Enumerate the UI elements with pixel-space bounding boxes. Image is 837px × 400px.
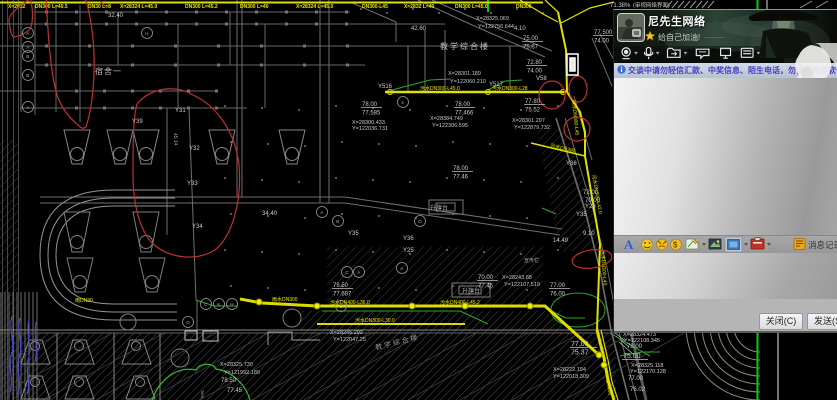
svg-text:DN300 L=40.5: DN300 L=40.5 <box>35 4 68 10</box>
svg-text:76.00: 76.00 <box>550 292 566 298</box>
svg-text:34.40: 34.40 <box>262 211 278 217</box>
svg-text:H: H <box>145 31 148 36</box>
svg-text:72.80: 72.80 <box>527 60 543 66</box>
svg-text:X=28222.194: X=28222.194 <box>553 367 586 373</box>
svg-text:77.46: 77.46 <box>453 175 469 181</box>
svg-text:G: G <box>418 219 422 224</box>
svg-text:B: B <box>26 73 29 78</box>
svg-text:77.45: 77.45 <box>227 388 243 394</box>
svg-text:升旗台: 升旗台 <box>430 204 448 212</box>
svg-text:Y34: Y34 <box>192 224 203 230</box>
svg-text:(审视网络界面): (审视网络界面) <box>633 1 670 9</box>
svg-text:77.00: 77.00 <box>628 376 644 382</box>
svg-text:Y32: Y32 <box>189 146 200 152</box>
svg-text:H: H <box>230 302 233 307</box>
svg-text:Y28: Y28 <box>585 204 596 210</box>
svg-text:75.00: 75.00 <box>523 36 539 42</box>
svg-text:78.00: 78.00 <box>453 166 469 172</box>
svg-text:雨水DN300: 雨水DN300 <box>272 296 298 303</box>
svg-text:Y25: Y25 <box>403 248 414 254</box>
svg-text:G: G <box>339 304 343 309</box>
svg-text:75.00: 75.00 <box>623 353 641 360</box>
svg-text:76.0: 76.0 <box>200 390 205 399</box>
svg-text:X=28245.292: X=28245.292 <box>330 330 363 336</box>
svg-text:74.00: 74.00 <box>527 69 543 75</box>
svg-text:75.87: 75.87 <box>523 45 539 51</box>
svg-text:K: K <box>217 302 220 307</box>
svg-text:70.00: 70.00 <box>478 275 494 281</box>
svg-text:B: B <box>336 219 339 224</box>
svg-text:DN300: DN300 <box>516 4 532 10</box>
svg-text:消息记录: 消息记录 <box>808 240 837 250</box>
svg-text:污水DN300-L45.0: 污水DN300-L45.0 <box>420 85 460 92</box>
svg-text:宿舍一: 宿舍一 <box>95 66 122 76</box>
svg-text:A: A <box>357 270 360 275</box>
svg-text:X=28243.88: X=28243.88 <box>502 275 532 281</box>
svg-text:污水DN400-L45.2: 污水DN400-L45.2 <box>440 299 480 306</box>
svg-text:Y36: Y36 <box>403 236 414 242</box>
svg-text:X=28324 L=45.0: X=28324 L=45.0 <box>296 4 333 10</box>
svg-text:78.00: 78.00 <box>627 344 643 350</box>
svg-text:Y=122306.595: Y=122306.595 <box>432 123 468 129</box>
svg-text:77.500: 77.500 <box>594 30 613 36</box>
svg-text:Y=121992.189: Y=121992.189 <box>224 370 260 376</box>
svg-text:DN30 L=8: DN30 L=8 <box>88 4 111 10</box>
svg-text:Y=122047.25: Y=122047.25 <box>333 337 366 343</box>
svg-text:A: A <box>26 31 29 36</box>
svg-text:77.80: 77.80 <box>525 99 541 105</box>
svg-text:78.00: 78.00 <box>362 102 378 108</box>
svg-text:教学综合楼: 教学综合楼 <box>440 41 490 51</box>
svg-text:DN300 L=40: DN300 L=40 <box>240 4 269 10</box>
svg-text:72.00: 72.00 <box>583 190 599 196</box>
svg-text:Y=122036.731: Y=122036.731 <box>352 126 388 132</box>
svg-text:$: $ <box>673 241 678 250</box>
svg-text:14.49: 14.49 <box>553 238 569 244</box>
svg-text:77.00: 77.00 <box>550 283 566 289</box>
svg-text:Y35: Y35 <box>576 212 587 218</box>
svg-text:75.37: 75.37 <box>571 350 589 357</box>
svg-text:78.50: 78.50 <box>221 378 237 384</box>
svg-text:Y517: Y517 <box>489 82 504 88</box>
svg-text:Y36: Y36 <box>566 161 577 167</box>
svg-text:X=28325.069: X=28325.069 <box>476 16 509 22</box>
svg-text:B: B <box>26 54 29 59</box>
svg-text:Y33: Y33 <box>187 181 198 187</box>
svg-text:Y516: Y516 <box>378 84 393 90</box>
svg-text:77.687: 77.687 <box>333 292 352 298</box>
svg-text:G: G <box>186 320 190 325</box>
svg-text:42.60: 42.60 <box>411 26 427 32</box>
svg-text:32.40: 32.40 <box>108 13 124 19</box>
svg-text:雨DN30: 雨DN30 <box>75 298 93 304</box>
svg-text:宣传栏: 宣传栏 <box>524 257 539 264</box>
svg-text:A: A <box>320 210 323 215</box>
svg-text:76.02: 76.02 <box>630 387 646 393</box>
svg-text:Y=122107.519: Y=122107.519 <box>504 282 540 288</box>
svg-text:X=28301.189: X=28301.189 <box>448 71 481 77</box>
svg-text:X=2832 L=40: X=2832 L=40 <box>404 4 435 10</box>
svg-text:Y=122018.309: Y=122018.309 <box>553 374 589 380</box>
svg-text:X=28301.297: X=28301.297 <box>512 118 545 124</box>
svg-text:X=28384.749: X=28384.749 <box>430 116 463 122</box>
svg-text:A: A <box>26 45 29 50</box>
svg-text:45.14: 45.14 <box>172 133 178 146</box>
svg-text:4.10: 4.10 <box>514 26 526 32</box>
svg-text:DN300 L=45.0: DN300 L=45.0 <box>455 4 488 10</box>
svg-text:X=28324 L=45.0: X=28324 L=45.0 <box>120 4 157 10</box>
svg-text:Y39: Y39 <box>132 119 143 125</box>
svg-text:DN300-L45: DN300-L45 <box>362 4 388 10</box>
svg-text:DN300 L=45.2: DN300 L=45.2 <box>185 4 218 10</box>
svg-text:75.52: 75.52 <box>525 108 541 114</box>
svg-text:Y=122170.128: Y=122170.128 <box>630 369 666 375</box>
svg-text:Y=122756.644: Y=122756.644 <box>478 24 514 30</box>
svg-text:Y=122060.210: Y=122060.210 <box>450 79 486 85</box>
svg-text:Y31: Y31 <box>175 108 186 114</box>
svg-text:77.585: 77.585 <box>362 111 381 117</box>
svg-text:A: A <box>400 266 403 271</box>
svg-text:Y35: Y35 <box>348 231 359 237</box>
svg-text:78.50: 78.50 <box>333 283 349 289</box>
svg-text:X=28325.730: X=28325.730 <box>220 362 253 368</box>
svg-text:77.46: 77.46 <box>478 284 494 290</box>
svg-text:V58: V58 <box>536 76 547 82</box>
svg-text:A: A <box>26 105 29 110</box>
svg-text:9.10: 9.10 <box>583 231 595 237</box>
svg-text:77.00: 77.00 <box>571 341 589 348</box>
svg-text:升旗台: 升旗台 <box>462 287 480 295</box>
svg-text:A: A <box>624 237 634 252</box>
svg-text:74.00: 74.00 <box>594 39 610 45</box>
svg-text:污水DN300-L30.0: 污水DN300-L30.0 <box>355 317 395 324</box>
svg-text:78.00: 78.00 <box>455 102 471 108</box>
svg-text:Y=122879.732: Y=122879.732 <box>514 125 550 131</box>
